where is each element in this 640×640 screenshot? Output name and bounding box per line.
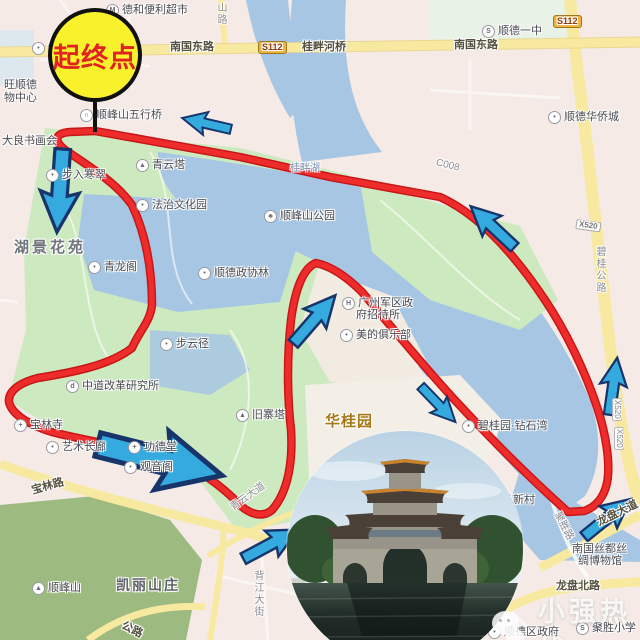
- start-end-circle: 起终点: [48, 8, 142, 102]
- park-lake: [78, 194, 296, 312]
- start-end-label: 起终点: [53, 36, 137, 75]
- wechat-icon: [492, 611, 530, 640]
- mall-block: [0, 30, 34, 86]
- watermark-text: 小强热线: [538, 590, 640, 640]
- watermark: 小强热线: [492, 590, 640, 640]
- route-map: M德和便利超市山路•恒龙南国东路S112桂畔河桥南国东路S112S顺德一中旺顺德…: [0, 0, 640, 640]
- start-marker-leader: [93, 100, 97, 132]
- start-end-marker: 起终点: [48, 8, 142, 102]
